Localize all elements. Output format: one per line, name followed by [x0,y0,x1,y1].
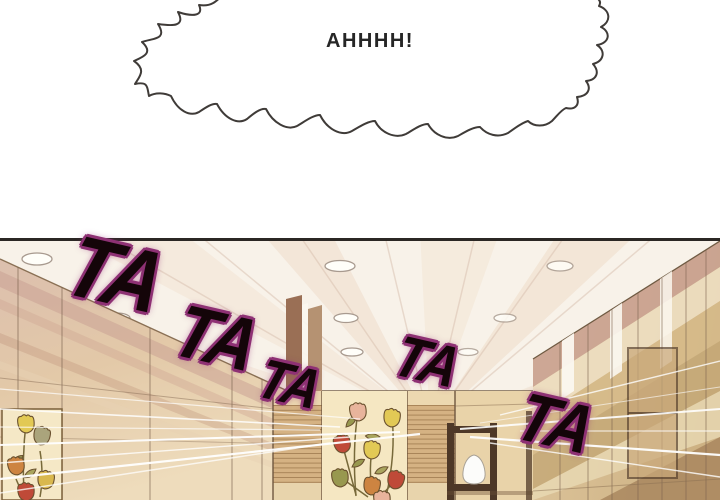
mural-left [2,409,62,500]
speech-panel: AHHHH! [0,0,720,239]
comic-page: AHHHH! [0,0,720,500]
speech-text: AHHHH! [300,30,440,53]
burst-bubble-outline [134,0,608,138]
mural-center [322,391,407,500]
